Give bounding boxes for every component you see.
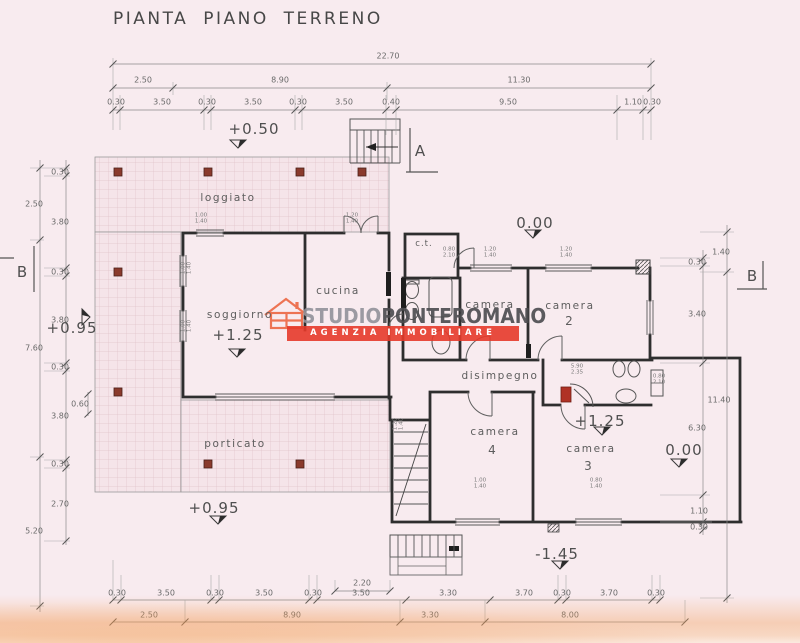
door-size-tag: 0.80 2.10 (443, 247, 455, 260)
dim-label: 0.30 (289, 98, 307, 107)
dim-label: 0.30 (51, 268, 69, 277)
window-size-tag: 1.20 1.40 (393, 418, 406, 430)
dim-label: 11.30 (508, 76, 531, 85)
room-label-camera3: camera (566, 443, 615, 455)
window-size-tag: 1.00 1.40 (474, 478, 486, 491)
dim-label: 0.30 (108, 589, 126, 598)
window-size-tag: 0.80 1.40 (590, 478, 602, 491)
room-label-ct: c.t. (415, 239, 432, 249)
room-label-camera2: camera (545, 300, 594, 312)
room-label-camera4: camera (470, 426, 519, 438)
section-letter-b-left: B (17, 263, 27, 281)
dim-label: 0.30 (647, 589, 665, 598)
watermark-banner-text: AGENZIA IMMOBILIARE (287, 326, 519, 341)
dim-label: 3.40 (688, 310, 706, 319)
dim-label: 2.70 (51, 500, 69, 509)
internal-stair (394, 424, 428, 516)
hatched-pillar-bottom (548, 524, 559, 532)
dim-label: 0.30 (690, 523, 708, 532)
dim-label: 2.50 (134, 76, 152, 85)
level-label: 0.00 (665, 441, 702, 459)
window-size-tag: 1.20 1.40 (484, 247, 496, 260)
dim-label: 5.20 (25, 527, 43, 536)
room-label-porticato: porticato (204, 438, 266, 450)
floor-plan-sheet: PIANTA PIANO TERRENO 22.70 2.50 8.90 11.… (0, 0, 800, 643)
window-size-tag: 1.00 1.40 (181, 320, 194, 332)
dim-label: 2.20 (353, 579, 371, 588)
dim-label: 0.30 (553, 589, 571, 598)
dim-label: 22.70 (377, 52, 400, 61)
room-label-cucina: cucina (316, 285, 360, 297)
dim-label: 0.30 (107, 98, 125, 107)
room-label-soggiorno: soggiorno (207, 309, 273, 321)
hatched-pillar-top (636, 260, 650, 274)
dim-label: 8.90 (283, 611, 301, 620)
dim-label: 3.50 (244, 98, 262, 107)
level-label: +1.25 (575, 412, 626, 430)
dim-label: 3.50 (335, 98, 353, 107)
room-label-loggiato: loggiato (200, 192, 255, 204)
dim-label: 0.30 (51, 168, 69, 177)
dim-label: 0.30 (206, 589, 224, 598)
dim-label: 3.50 (352, 589, 370, 598)
dim-label: 0.60 (71, 400, 89, 409)
level-label: -1.45 (535, 545, 579, 563)
dim-label: 1.10 (624, 98, 642, 107)
window-size-tag: 1.20 1.40 (560, 247, 572, 260)
section-letter-b-right: B (747, 267, 757, 285)
watermark-studio: STUDIO (302, 304, 381, 328)
dim-label: 0.30 (51, 460, 69, 469)
dim-label: 0.40 (382, 98, 400, 107)
dim-label: 3.50 (153, 98, 171, 107)
entry-stair-top (350, 119, 400, 163)
dim-label: 8.00 (561, 611, 579, 620)
window-size-tag: 0.80 2.10 (653, 374, 665, 387)
dim-label: 1.40 (712, 248, 730, 257)
dim-label: 6.30 (688, 424, 706, 433)
boiler-marker (561, 387, 571, 402)
dim-label: 3.70 (515, 589, 533, 598)
dim-label: 0.30 (51, 363, 69, 372)
dim-label: 3.30 (439, 589, 457, 598)
door-size-tag: 5.90 2.35 (571, 364, 583, 377)
room-number-camera4: 4 (488, 443, 496, 457)
external-stair-bottom (390, 535, 462, 575)
room-number-camera3: 3 (584, 459, 592, 473)
window-size-tag: 1.00 1.40 (181, 262, 194, 274)
dim-label: 3.50 (255, 589, 273, 598)
shower (570, 384, 593, 407)
dim-label: 8.90 (271, 76, 289, 85)
window-size-tag: 1.00 1.40 (195, 213, 207, 226)
room-number-camera2: 2 (565, 314, 573, 328)
dim-label: 0.30 (688, 258, 706, 267)
dim-label: 3.50 (157, 589, 175, 598)
section-letter-a: A (415, 142, 425, 160)
dim-label: 3.80 (51, 412, 69, 421)
page-title: PIANTA PIANO TERRENO (113, 9, 383, 29)
dim-label: 0.30 (304, 589, 322, 598)
dim-label: 3.70 (600, 589, 618, 598)
level-label: +1.25 (213, 326, 264, 344)
dim-label: 0.30 (643, 98, 661, 107)
dim-label: 3.80 (51, 218, 69, 227)
watermark-banner: AGENZIA IMMOBILIARE (287, 326, 519, 341)
watermark-name: PONTEROMANO (381, 304, 546, 328)
dim-label: 9.50 (499, 98, 517, 107)
dim-label: 1.10 (690, 507, 708, 516)
dim-label: 3.30 (421, 611, 439, 620)
level-label: +0.50 (229, 120, 280, 138)
dim-label: 7.60 (25, 344, 43, 353)
watermark-logo: STUDIOPONTEROMANO (302, 304, 546, 328)
window-size-tag: 1.20 1.40 (346, 213, 358, 226)
dim-label: 2.50 (25, 200, 43, 209)
dim-label: 11.40 (708, 396, 731, 405)
dim-label: 0.30 (198, 98, 216, 107)
room-label-disimpegno: disimpegno (461, 370, 538, 382)
dim-label: 2.50 (140, 611, 158, 620)
level-label: +0.95 (189, 499, 240, 517)
level-label: +0.95 (47, 319, 98, 337)
level-label: 0.00 (516, 214, 553, 232)
